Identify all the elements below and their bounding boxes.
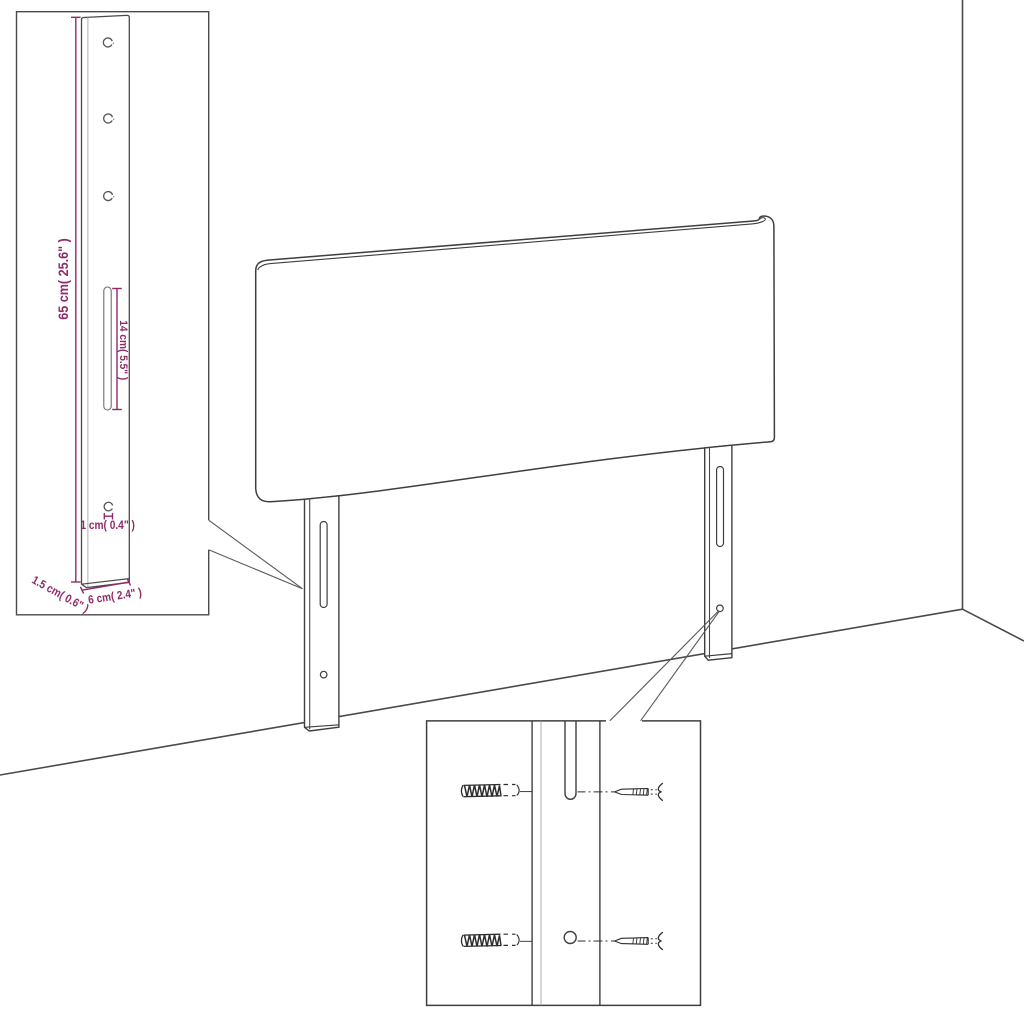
svg-text:14 cm( 5.5" ): 14 cm( 5.5" ) xyxy=(117,320,129,380)
svg-text:65 cm( 25.6" ): 65 cm( 25.6" ) xyxy=(56,238,71,320)
svg-text:1 cm( 0.4" ): 1 cm( 0.4" ) xyxy=(80,519,135,532)
